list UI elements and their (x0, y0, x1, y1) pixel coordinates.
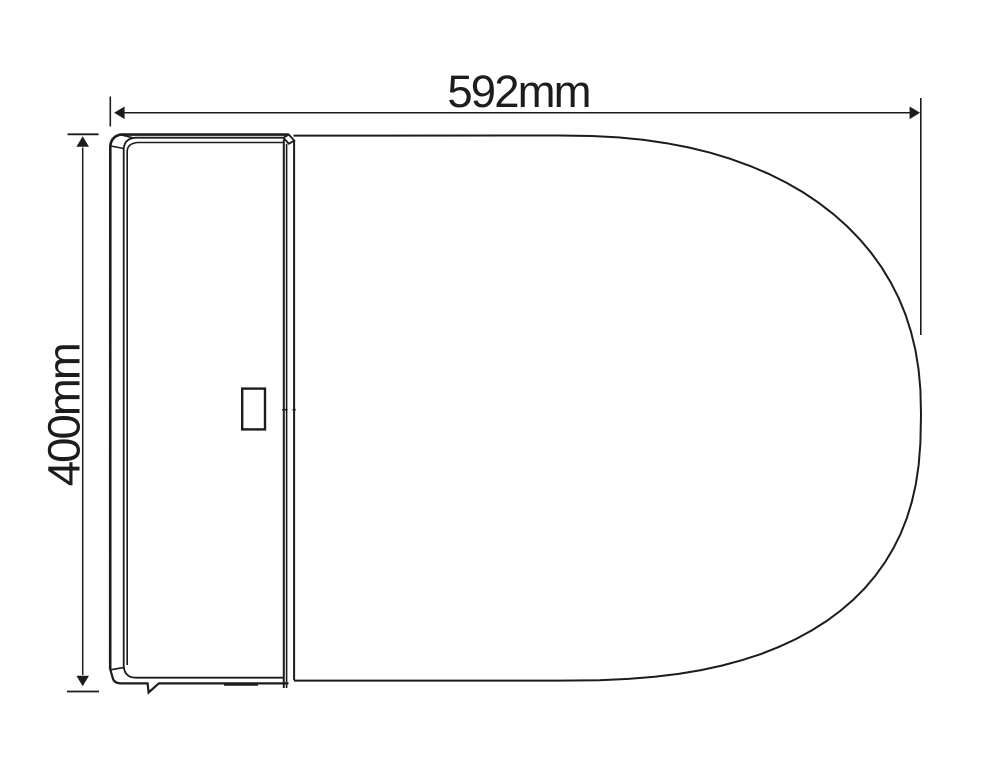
svg-text:592mm: 592mm (447, 66, 589, 117)
svg-text:400mm: 400mm (38, 344, 89, 486)
